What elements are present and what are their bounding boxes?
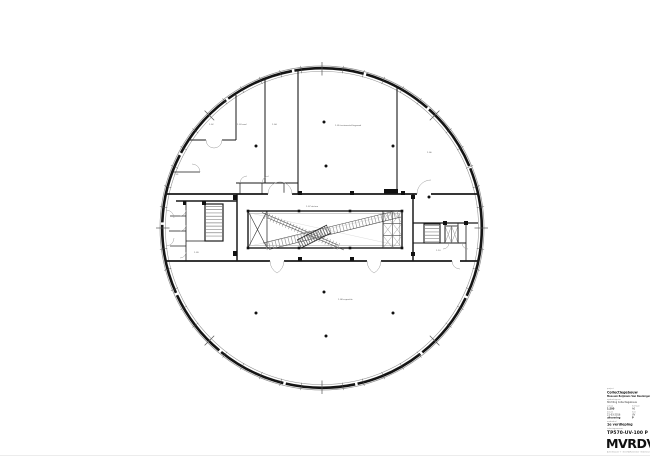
revision-value: P (632, 417, 634, 420)
room-labels: 1.02 1.03 zaal 1.04 1.05 tentoonstelling… (174, 124, 441, 301)
room-label: 1.04 (272, 124, 277, 126)
status-value: uitvoering (607, 417, 621, 420)
room-label: 1.10 (436, 250, 441, 252)
sheet-edge-line (0, 455, 650, 456)
address-line: Achterklooster 7 · 3011 RA Rotterdam · N… (607, 451, 649, 454)
room-label: 1.01 (174, 174, 179, 176)
project-location: Museum Boijmans Van Beuningen, Rotterdam (607, 395, 650, 398)
part-value: 1e verdieping (607, 423, 633, 427)
drawing-number: TP570-UV-100 P (607, 430, 649, 436)
project-name: Collectiegebouw (607, 390, 638, 394)
format-value: A0 (632, 407, 636, 410)
mvrdv-logo: MVRDV (606, 436, 650, 451)
drawing-sheet: 1.02 1.03 zaal 1.04 1.05 tentoonstelling… (0, 0, 650, 459)
floor-plan-svg: 1.02 1.03 zaal 1.04 1.05 tentoonstelling… (0, 0, 650, 459)
right-core (411, 194, 478, 261)
atrium (247, 210, 404, 250)
column-dots (255, 121, 431, 338)
drawing-number-label: tekeningnummer (607, 427, 623, 430)
room-label: 1.02 (209, 124, 214, 126)
room-label: 1.06 (427, 152, 432, 154)
client-value: Stichting Collectiegebouw (607, 401, 637, 404)
room-label: 1.05 tentoonstellingszaal (335, 124, 362, 127)
scale-value: 1:200 (607, 407, 615, 410)
title-block: project Collectiegebouw Museum Boijmans … (606, 387, 650, 454)
left-core (166, 194, 237, 261)
room-label: 1.07 atrium (306, 205, 318, 208)
upper-walls (172, 70, 398, 194)
room-label: 1.03 zaal (237, 124, 247, 126)
room-label: 1.09 (194, 252, 199, 254)
room-label: 1.08 expositie (338, 298, 353, 301)
